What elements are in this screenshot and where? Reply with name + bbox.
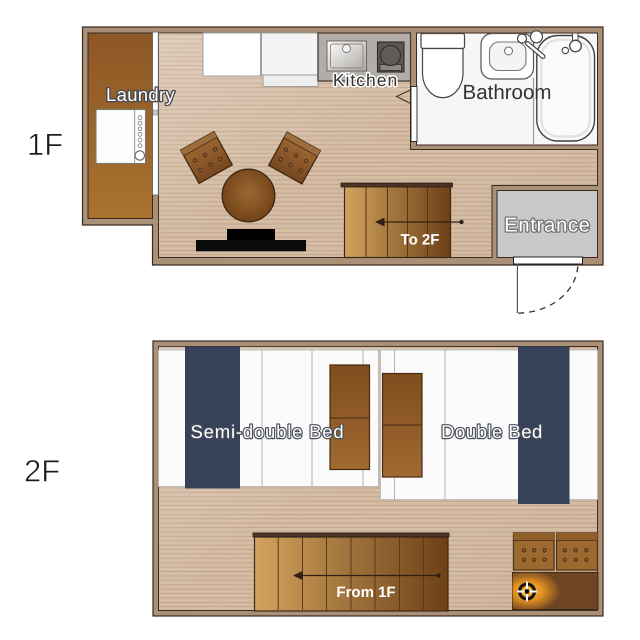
svg-text:Entrance: Entrance <box>504 215 590 237</box>
svg-text:2F: 2F <box>24 454 60 489</box>
svg-text:From 1F: From 1F <box>336 584 395 601</box>
svg-text:To 2F: To 2F <box>401 232 440 249</box>
svg-text:Laundry: Laundry <box>106 84 175 105</box>
svg-text:Double Bed: Double Bed <box>441 421 543 442</box>
svg-text:1F: 1F <box>27 127 63 162</box>
svg-text:Semi-double Bed: Semi-double Bed <box>191 421 345 442</box>
svg-text:Kitchen: Kitchen <box>333 70 398 90</box>
svg-text:Bathroom: Bathroom <box>463 81 552 104</box>
